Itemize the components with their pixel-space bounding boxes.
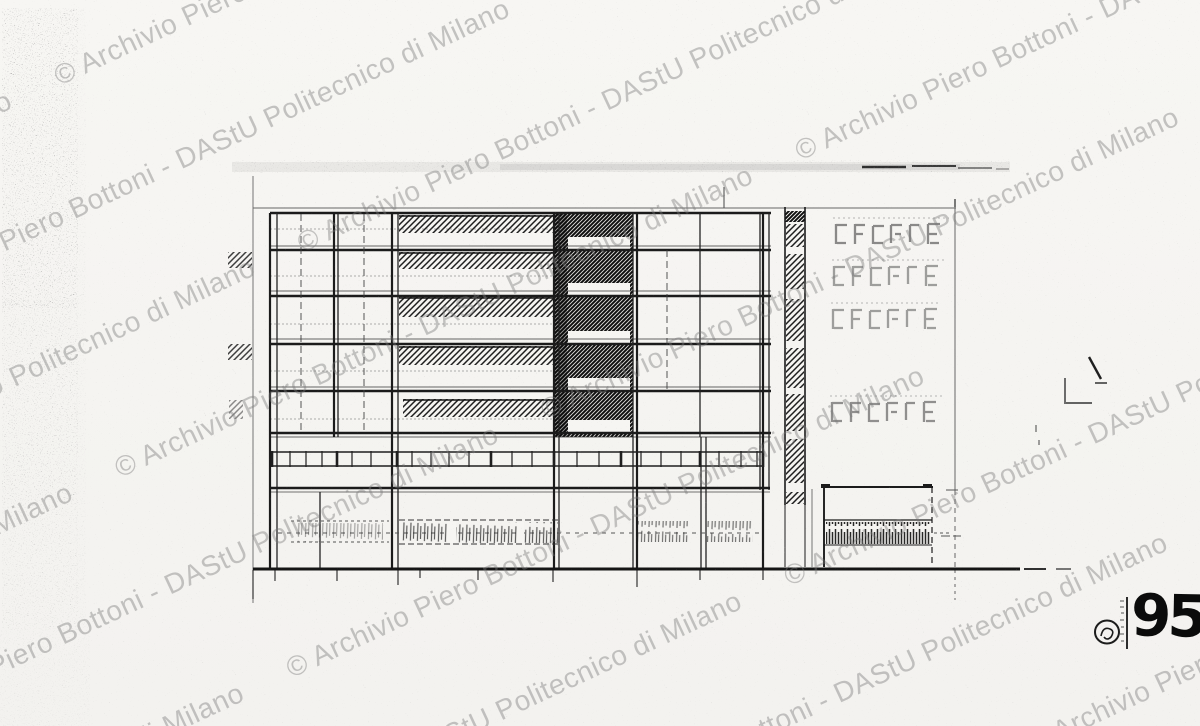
stair-tower-hatch (554, 213, 633, 437)
shop-sign-scribble (638, 521, 688, 542)
mezzanine-tick-band (271, 451, 764, 467)
scan-smudge-line (232, 162, 1010, 172)
left-balcony-stub (228, 252, 252, 268)
service-pillar-hatch (785, 207, 812, 567)
left-balcony-stub (228, 344, 252, 360)
shop-sign-scribble (402, 522, 558, 543)
scanned-archive-sheet: © Archivio Piero Bottoni - DAStU Politec… (0, 0, 1200, 726)
storefront-band (253, 486, 952, 599)
shop-sign-scribble (706, 521, 753, 542)
micro-caption-line (1120, 597, 1127, 649)
shop-sign-scribble (297, 523, 383, 542)
sheet-number: 95 (1130, 581, 1200, 651)
building-elevation-sketch (0, 0, 1200, 726)
shop-sign-scribble (826, 522, 930, 544)
circled-scribble-stamp-icon (1095, 621, 1119, 644)
right-wing-signage-sketch (830, 218, 949, 422)
stray-pencil-marks (1036, 357, 1107, 445)
